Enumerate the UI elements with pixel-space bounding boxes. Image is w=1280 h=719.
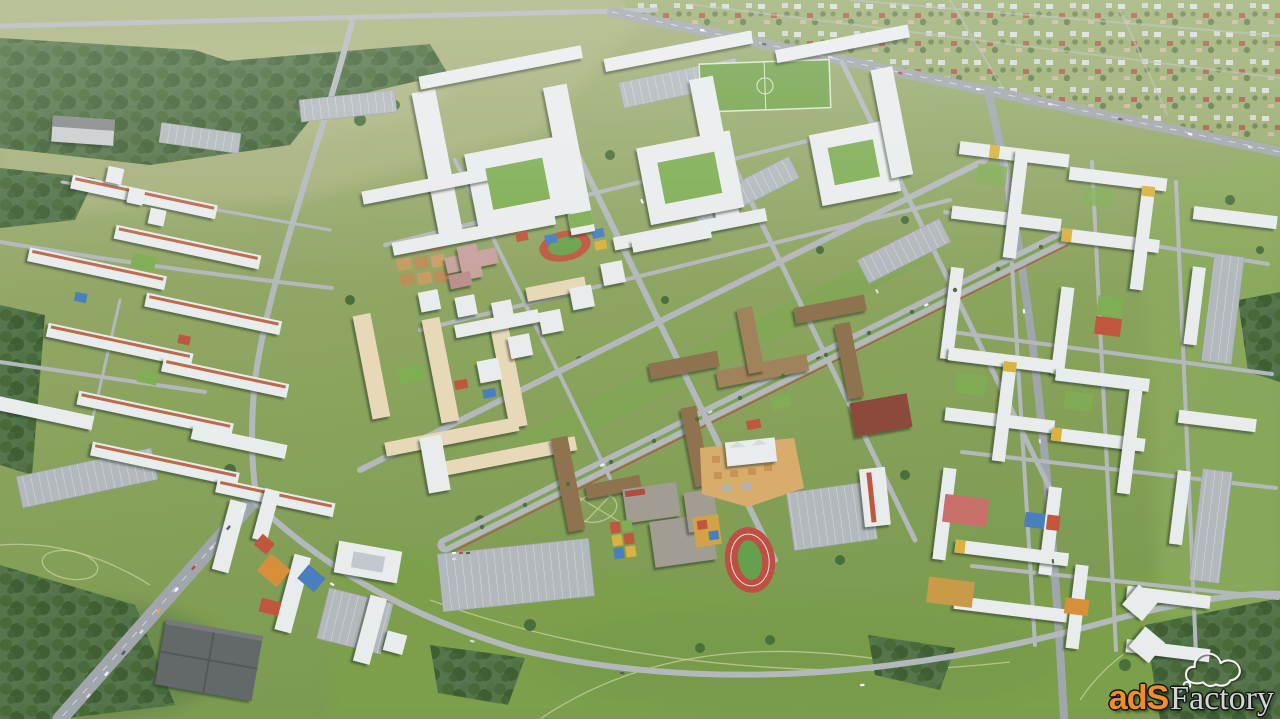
haze-overlay [0,0,1280,719]
render-canvas [0,0,1280,719]
aerial-render-scene: adSFactory [0,0,1280,719]
